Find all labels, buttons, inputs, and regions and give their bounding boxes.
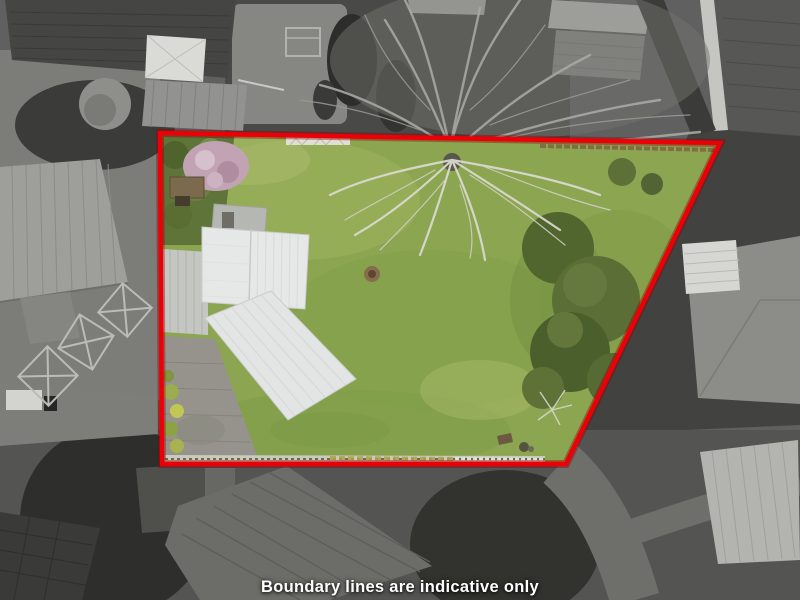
neighbor-pergola-right [682,240,740,294]
neighbor-hip-roof-white [145,35,206,82]
neighbor-roof-top-right [700,0,800,136]
garage-roof [163,249,208,335]
neighbor-roof-ribbed-top-left [142,80,247,131]
aerial-photo: Boundary lines are indicative only [0,0,800,600]
disclaimer-caption: Boundary lines are indicative only [0,578,800,597]
aerial-scene [0,0,800,600]
fire-pit [364,266,380,282]
neighbor-house-right [682,236,800,404]
